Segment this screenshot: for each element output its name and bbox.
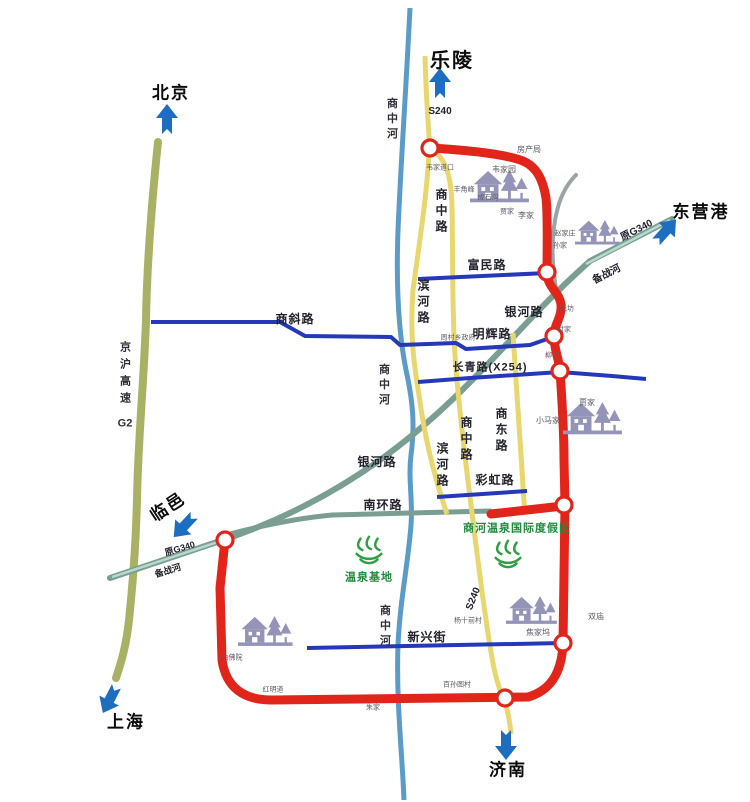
- label-village-jiajia-e: 贾家: [579, 399, 595, 407]
- leling-arrow-icon: [429, 68, 451, 98]
- label-yinhe-road-sw: 银河路: [357, 456, 396, 468]
- label-village-sunjia: 孙家: [553, 243, 567, 250]
- label-village-hongmingdao: 红明道: [263, 687, 284, 694]
- label-dongying-port: 东营港: [673, 204, 730, 221]
- label-shangxie-road: 商斜路: [275, 313, 314, 325]
- shangzhonghe-river: [397, 8, 413, 800]
- hot-spring-logo: [357, 537, 382, 563]
- changqing-road: [418, 372, 646, 382]
- label-jinghu-code: G2: [118, 419, 133, 430]
- shangdong-road: [513, 333, 525, 513]
- label-yinhe-road-ne: 银河路: [504, 306, 543, 318]
- node-south: [497, 690, 513, 706]
- label-shangdong-road: 商东路: [495, 407, 507, 455]
- label-resort-base: 温泉基地: [345, 573, 393, 584]
- label-village-jiajia-n: 贾家: [500, 209, 514, 216]
- label-village-weijiadaokou: 韦家道口: [426, 165, 454, 172]
- node-north: [422, 140, 438, 156]
- label-village-liuhang: 柳行: [545, 353, 559, 360]
- village-icon: [506, 596, 557, 624]
- label-village-baisuntucun: 百孙图村: [443, 682, 471, 689]
- label-village-fujia: 付家: [557, 327, 571, 334]
- label-xinxing-street: 新兴街: [407, 631, 446, 643]
- label-leling: 乐陵: [430, 51, 474, 71]
- label-village-zhaojiazhuang: 赵家庄: [555, 231, 576, 238]
- label-beijing: 北京: [152, 85, 190, 102]
- label-changqing-road: 长青路(X254): [452, 363, 527, 374]
- label-village-lijia: 李家: [518, 212, 534, 220]
- label-caihong-road: 彩虹路: [475, 474, 514, 486]
- label-village-xiaomajia: 小马家: [536, 417, 560, 425]
- label-shangzhonghe-north: 商中河: [386, 98, 397, 143]
- village-icon: [238, 616, 293, 646]
- label-resort-zone: 商河温泉国际度假区: [463, 524, 571, 535]
- map-canvas: 乐陵 北京 东营港 临邑 上海 济南 京沪高速 G2 S240 S240 原G3…: [0, 0, 750, 802]
- label-village-shuangmiao: 双庙: [588, 613, 604, 621]
- village-icon: [575, 220, 620, 244]
- node-fumin: [539, 264, 555, 280]
- label-shangzhong-road-n: 商中路: [435, 188, 447, 236]
- label-shangzhonghe-middle: 商中河: [378, 364, 389, 409]
- label-village-jiaojiawu: 焦家坞: [526, 629, 550, 637]
- label-village-yangshiqiancun: 杨十前村: [454, 618, 482, 625]
- label-township-gov: 周村乡政府: [441, 335, 476, 342]
- label-binhe-road-s: 滨河路: [436, 442, 448, 490]
- resort-spur-road: [491, 506, 563, 514]
- map-svg: [0, 0, 750, 802]
- label-village-zhifang: 纸坊: [560, 306, 574, 313]
- label-s240-north: S240: [428, 107, 451, 117]
- node-changqing: [552, 363, 568, 379]
- beijing-arrow-icon: [156, 104, 178, 134]
- caihong-road: [437, 491, 527, 497]
- nanhuan-road: [230, 511, 490, 534]
- fumin-road: [418, 273, 547, 279]
- label-village-baifoyuan: 白佛院: [222, 655, 243, 662]
- label-jinghu-expressway: 京沪高速: [119, 341, 130, 409]
- hot-spring-logo: [496, 541, 521, 567]
- label-shangzhonghe-south: 商中河: [379, 605, 390, 650]
- label-jinan: 济南: [489, 762, 527, 779]
- jinan-arrow-icon: [495, 730, 517, 760]
- label-shangzhong-road-s: 商中路: [460, 416, 472, 464]
- label-village-chengshigou: 成石沟: [478, 195, 499, 202]
- label-village-zhujia: 朱家: [366, 705, 380, 712]
- label-nanhuan-road: 南环路: [363, 499, 402, 511]
- node-resort: [556, 497, 572, 513]
- label-village-weijiayuan: 韦家园: [492, 166, 516, 174]
- label-minghui-road: 明辉路: [472, 328, 511, 340]
- node-southwest: [217, 532, 233, 548]
- jinghu-expressway-road: [116, 142, 158, 678]
- label-fumin-road: 富民路: [467, 259, 506, 271]
- label-binhe-road-n: 滨河路: [417, 279, 429, 327]
- label-village-fangchanju: 房产局: [517, 146, 541, 154]
- node-xinxing: [555, 635, 571, 651]
- label-shanghai: 上海: [107, 714, 145, 731]
- label-village-fengjiaofeng: 丰角峰: [454, 187, 475, 194]
